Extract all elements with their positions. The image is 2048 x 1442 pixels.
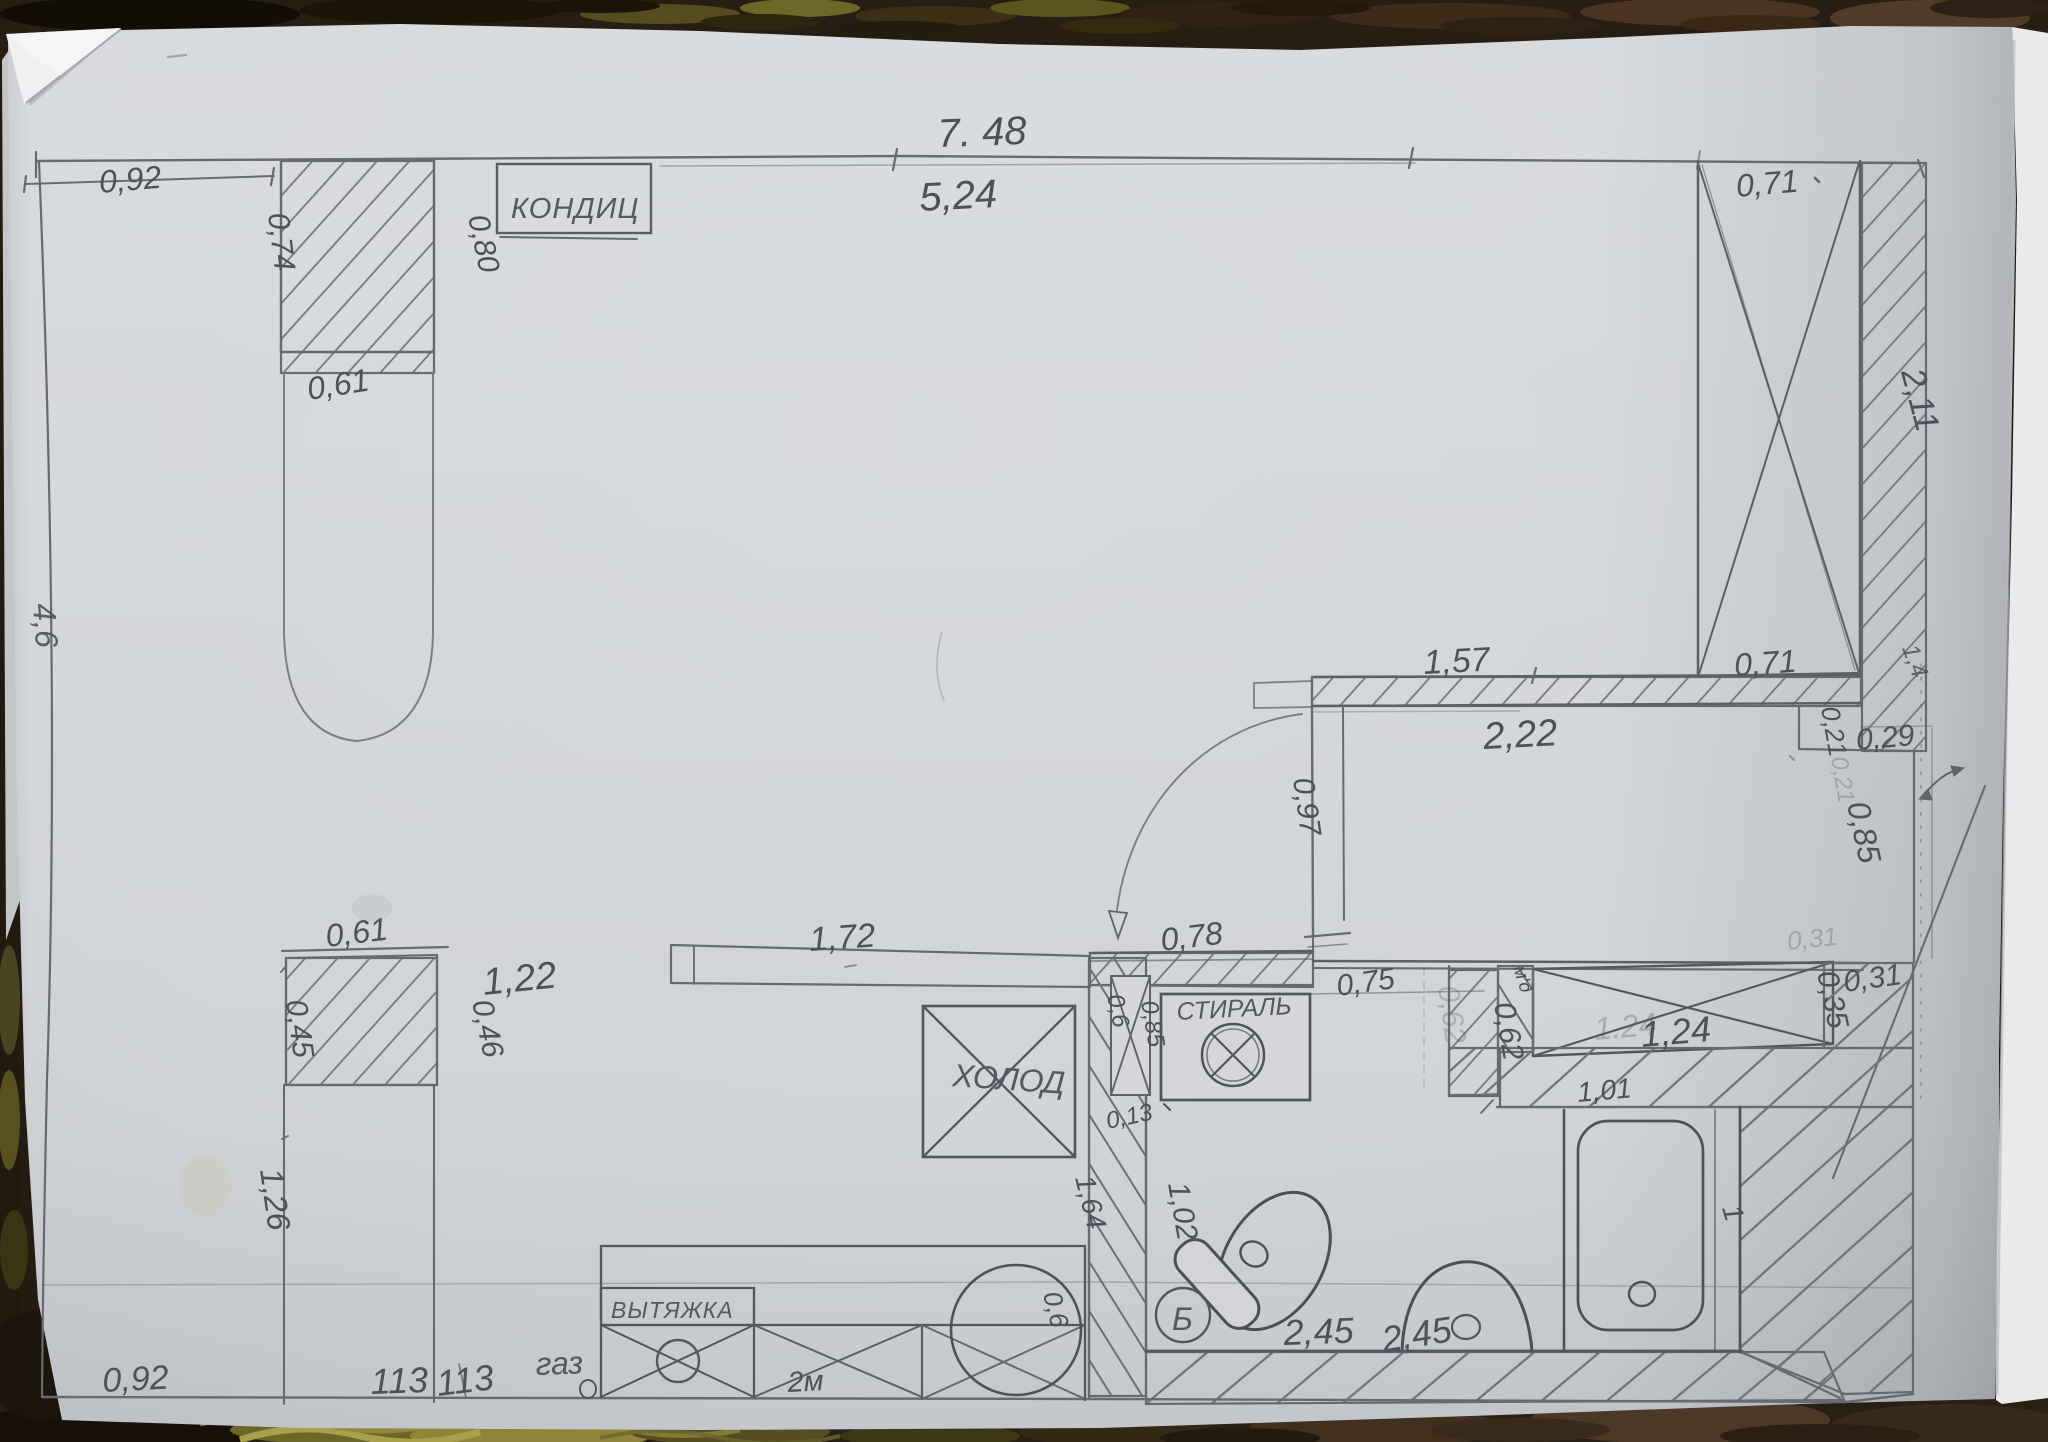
svg-text:2м: 2м: [786, 1365, 825, 1399]
svg-text:7. 48: 7. 48: [937, 109, 1028, 156]
svg-text:0,71: 0,71: [1734, 163, 1799, 204]
svg-text:Б: Б: [1172, 1301, 1193, 1337]
svg-text:0,71: 0,71: [1733, 643, 1798, 683]
svg-text:113: 113: [434, 1356, 496, 1404]
svg-text:КОНДИЦ: КОНДИЦ: [511, 193, 640, 225]
svg-text:0,92: 0,92: [101, 1359, 169, 1400]
svg-text:2,22: 2,22: [1481, 712, 1558, 758]
svg-text:4,6: 4,6: [26, 602, 65, 649]
svg-text:0,61: 0,61: [323, 911, 389, 954]
svg-text:0,78: 0,78: [1158, 915, 1224, 958]
svg-text:газ: газ: [535, 1344, 584, 1382]
svg-text:1,22: 1,22: [481, 954, 559, 1004]
svg-text:ВЫТЯЖКА: ВЫТЯЖКА: [611, 1297, 734, 1323]
svg-text:1,01: 1,01: [1576, 1072, 1633, 1108]
svg-text:2,45: 2,45: [1282, 1310, 1355, 1353]
svg-text:113: 113: [370, 1359, 429, 1402]
svg-text:1.24: 1.24: [1592, 1006, 1657, 1047]
svg-text:1,72: 1,72: [808, 916, 877, 959]
svg-text:1,57: 1,57: [1422, 641, 1491, 682]
svg-text:0,29: 0,29: [1855, 719, 1916, 757]
svg-text:5,24: 5,24: [918, 172, 998, 220]
svg-text:0,31: 0,31: [1785, 921, 1838, 956]
svg-text:0,92: 0,92: [97, 159, 162, 200]
svg-text:0,74: 0,74: [261, 211, 301, 273]
